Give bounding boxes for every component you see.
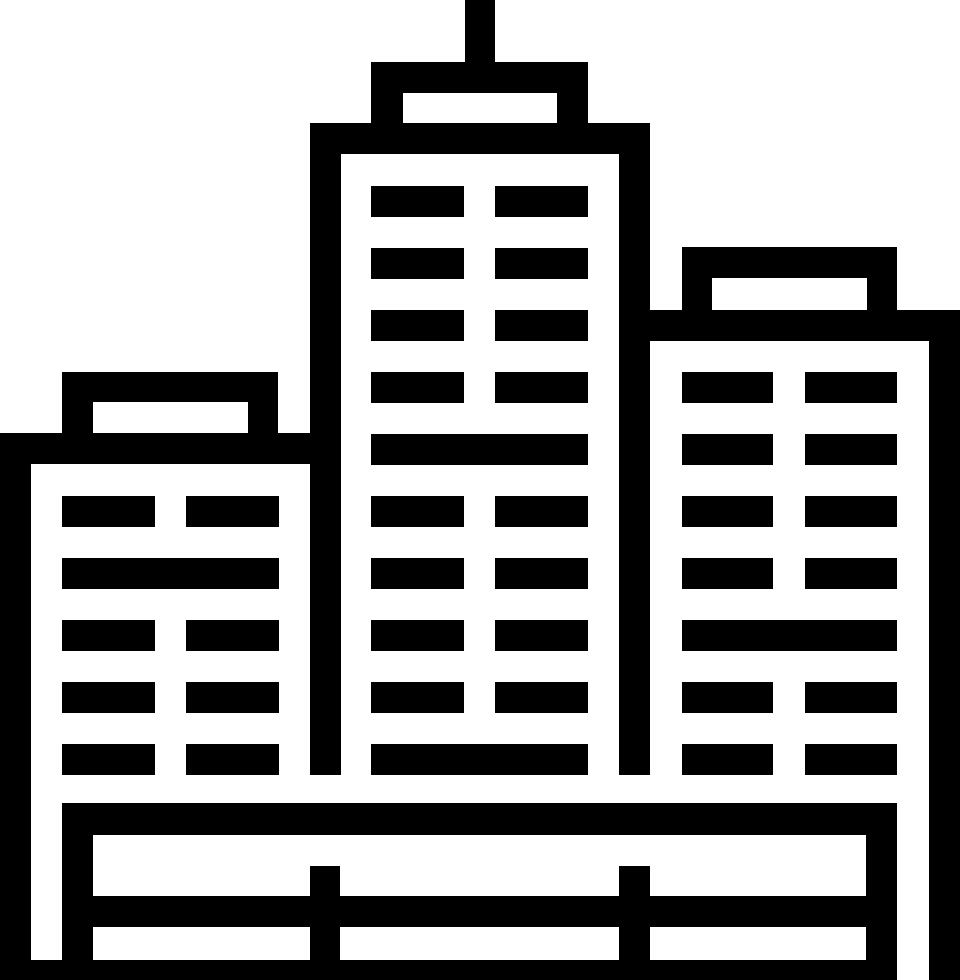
- antenna: [465, 0, 495, 62]
- right-building-roof-cap-rect: [867, 278, 897, 310]
- left-building-roof-cap: [62, 372, 278, 433]
- left-building-windows-rect: [62, 620, 155, 651]
- left-building-roof-cap-rect: [248, 402, 278, 433]
- center-building-windows-rect: [495, 372, 588, 403]
- left-building-windows-rect: [62, 682, 155, 713]
- base-platform-rect: [93, 896, 866, 927]
- right-building-windows-rect: [805, 434, 897, 465]
- center-building-windows-rect: [371, 744, 588, 775]
- center-building-windows-rect: [495, 620, 588, 651]
- left-building-windows-rect: [62, 744, 155, 775]
- left-building-windows-rect: [62, 496, 155, 527]
- center-building-frame-rect: [619, 123, 650, 775]
- center-building-windows-rect: [371, 682, 464, 713]
- right-building-windows: [682, 372, 897, 775]
- base-platform-rect: [62, 803, 93, 980]
- right-building-windows-rect: [805, 682, 897, 713]
- right-building-windows-rect: [682, 558, 773, 589]
- center-building-windows: [371, 186, 588, 775]
- center-building-windows-rect: [371, 310, 464, 341]
- antenna-rect: [465, 0, 495, 62]
- left-building-windows-rect: [186, 744, 279, 775]
- center-building-roof-cap-rect: [557, 93, 588, 124]
- right-building-frame-rect: [929, 310, 960, 980]
- left-building-windows-rect: [186, 682, 279, 713]
- center-building-windows-rect: [371, 620, 464, 651]
- right-building-windows-rect: [682, 744, 773, 775]
- center-building-windows-rect: [371, 558, 464, 589]
- right-building-roof-cap-rect: [682, 278, 712, 310]
- left-building-frame-rect: [0, 433, 310, 464]
- right-building-windows-rect: [682, 620, 897, 651]
- left-building-roof-cap-rect: [62, 402, 93, 433]
- right-building-windows-rect: [682, 434, 773, 465]
- center-building-roof-cap-rect: [371, 93, 403, 124]
- right-building-windows-rect: [682, 496, 773, 527]
- city-buildings-svg: [0, 0, 960, 980]
- center-building-windows-rect: [371, 434, 588, 465]
- right-building-windows-rect: [805, 372, 897, 403]
- center-building-windows-rect: [495, 682, 588, 713]
- left-building-windows-rect: [186, 620, 279, 651]
- center-building-windows-rect: [371, 372, 464, 403]
- left-building-windows-rect: [186, 496, 279, 527]
- base-platform: [0, 803, 897, 980]
- right-building-windows-rect: [805, 558, 897, 589]
- center-building-roof-cap-rect: [371, 62, 588, 93]
- right-building-roof-cap-rect: [682, 247, 897, 278]
- center-building-roof-cap: [371, 62, 588, 124]
- center-building-frame-rect: [310, 123, 341, 775]
- center-building-windows-rect: [371, 186, 464, 217]
- base-platform-rect: [866, 803, 897, 980]
- right-building-windows-rect: [682, 682, 773, 713]
- center-building-windows-rect: [495, 496, 588, 527]
- right-building-frame-rect: [650, 310, 960, 341]
- right-building-windows-rect: [805, 496, 897, 527]
- right-building-windows-rect: [682, 372, 773, 403]
- center-building-windows-rect: [495, 248, 588, 279]
- left-building-windows: [62, 496, 279, 775]
- center-building-windows-rect: [495, 310, 588, 341]
- center-building-windows-rect: [371, 496, 464, 527]
- city-buildings-icon: [0, 0, 960, 980]
- base-platform-rect: [62, 803, 897, 835]
- left-building-roof-cap-rect: [62, 372, 278, 402]
- center-building-windows-rect: [371, 248, 464, 279]
- left-building-frame-rect: [0, 433, 31, 980]
- right-building-roof-cap: [682, 247, 897, 310]
- center-building-frame-rect: [310, 123, 650, 154]
- left-building-windows-rect: [62, 558, 279, 589]
- base-platform-rect: [0, 960, 897, 980]
- center-building-windows-rect: [495, 186, 588, 217]
- right-building-windows-rect: [805, 744, 897, 775]
- center-building-windows-rect: [495, 558, 588, 589]
